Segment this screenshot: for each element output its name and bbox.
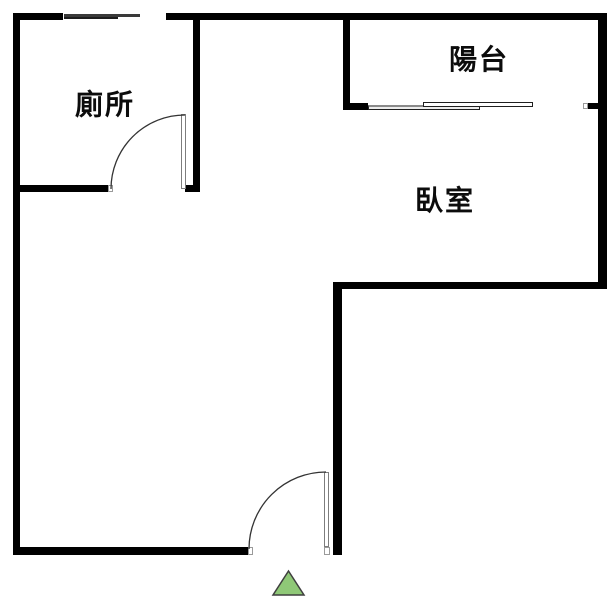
balcony-divider-stub-left bbox=[343, 103, 368, 110]
toilet-door-swing-arc bbox=[111, 115, 185, 189]
toilet-window-pane-lower bbox=[64, 17, 118, 19]
outer-wall-left bbox=[13, 13, 20, 555]
toilet-wall-bottom-left-segment bbox=[13, 185, 109, 192]
floor-plan: 廁所 陽台 臥室 bbox=[0, 0, 615, 605]
toilet-door-jamb-cap bbox=[108, 185, 113, 192]
entrance-door-swing-arc bbox=[249, 472, 326, 549]
entrance-door-leaf bbox=[324, 472, 329, 547]
balcony-divider-end-cap bbox=[583, 103, 588, 109]
toilet-wall-right bbox=[193, 13, 200, 192]
outer-wall-right bbox=[598, 13, 607, 289]
living-wall-right bbox=[333, 282, 342, 555]
outer-wall-bottom bbox=[13, 547, 249, 555]
balcony-wall-left bbox=[343, 13, 350, 110]
room-label-toilet: 廁所 bbox=[75, 91, 135, 119]
bedroom-wall-bottom bbox=[333, 282, 607, 289]
balcony-divider-stub-right bbox=[587, 103, 598, 109]
toilet-door-leaf bbox=[181, 114, 186, 189]
toilet-wall-bottom-right-segment bbox=[185, 185, 200, 192]
room-label-bedroom: 臥室 bbox=[415, 187, 475, 215]
room-label-balcony: 陽台 bbox=[449, 46, 509, 74]
balcony-sliding-door-pane-right bbox=[423, 102, 533, 107]
outer-wall-top-left-segment bbox=[13, 13, 63, 20]
entrance-direction-triangle-icon bbox=[273, 571, 304, 595]
entrance-jamb-cap-right bbox=[324, 547, 330, 555]
outer-wall-top-main-segment bbox=[166, 13, 607, 20]
entrance-jamb-cap-left bbox=[248, 547, 253, 555]
